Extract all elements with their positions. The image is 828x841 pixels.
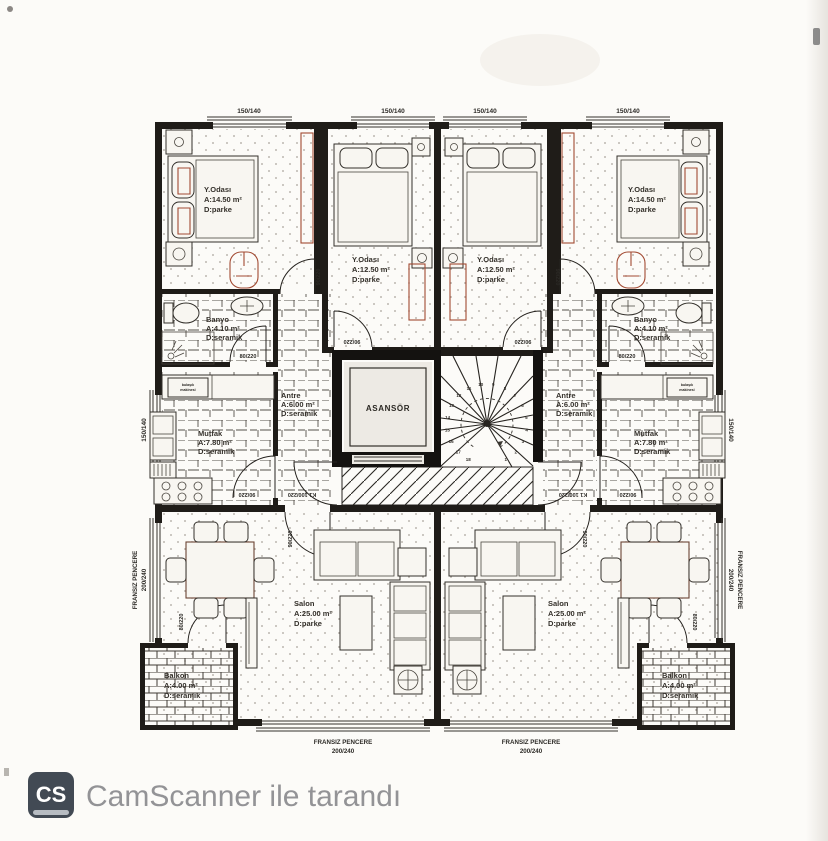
svg-text:Y.Odası: Y.Odası xyxy=(204,185,231,194)
elevator: ASANSÖR xyxy=(344,362,432,464)
svg-text:A:6.00 m²: A:6.00 m² xyxy=(281,400,315,409)
armchair-icon xyxy=(398,548,426,576)
svg-text:D:seramik: D:seramik xyxy=(164,691,201,700)
camscanner-caption: CamScanner ile tarandı xyxy=(86,780,401,813)
radiator-icon xyxy=(246,598,257,668)
nightstand-icon xyxy=(412,138,430,156)
stair-step-number: 10 xyxy=(478,382,484,387)
scan-smudge xyxy=(480,34,600,86)
radiator-icon xyxy=(618,598,629,668)
svg-text:D:parke: D:parke xyxy=(352,275,380,284)
stair-step-number: 17 xyxy=(456,449,462,454)
door-size-label: 80/220 xyxy=(179,614,185,631)
svg-text:D:parke: D:parke xyxy=(204,205,232,214)
stair-step-number: 12 xyxy=(456,393,462,398)
pillow-icon xyxy=(503,148,535,168)
pillow-icon xyxy=(681,162,703,198)
pillow-icon xyxy=(376,148,408,168)
stair-landing xyxy=(342,467,533,505)
svg-text:A:14.50 m²: A:14.50 m² xyxy=(204,195,242,204)
svg-text:D:seramik: D:seramik xyxy=(634,333,671,342)
door-size-label: 90/220 xyxy=(288,531,294,548)
svg-text:D:seramik: D:seramik xyxy=(281,409,318,418)
window-size-label: 150/140 xyxy=(237,108,261,115)
kitchen-sink-icon xyxy=(150,412,176,460)
camscanner-logo-text: CS xyxy=(36,782,67,807)
door-size-label: 80/220 xyxy=(619,354,636,360)
svg-text:D:seramik: D:seramik xyxy=(634,447,671,456)
svg-text:D:parke: D:parke xyxy=(294,619,322,628)
svg-text:Banyo: Banyo xyxy=(206,315,229,324)
french-window-label: FRANSIZ PENCERE xyxy=(736,551,743,609)
nightstand-icon xyxy=(166,242,192,266)
svg-text:A:7.80 m²: A:7.80 m² xyxy=(634,438,668,447)
svg-text:Salon: Salon xyxy=(294,599,315,608)
kitchen-sink-icon xyxy=(699,412,725,460)
svg-text:A:4.10 m²: A:4.10 m² xyxy=(634,324,668,333)
window-size-label: 150/140 xyxy=(381,108,405,115)
door-size-label: 90/220 xyxy=(581,531,587,548)
svg-text:Y.Odası: Y.Odası xyxy=(352,255,379,264)
door-size-label: 90/220 xyxy=(554,269,560,286)
window-size-label: 150/140 xyxy=(616,108,640,115)
door-size-label: 90/220 xyxy=(344,338,361,344)
svg-text:A:25.00 m²: A:25.00 m² xyxy=(548,609,586,618)
svg-text:Balkon: Balkon xyxy=(662,671,687,680)
door-size-label: 90/220 xyxy=(316,269,322,286)
svg-text:D:parke: D:parke xyxy=(628,205,656,214)
elevator-label: ASANSÖR xyxy=(366,404,410,413)
armchair-icon xyxy=(449,548,477,576)
door-size-label: 90/220 xyxy=(620,491,637,497)
svg-text:A:7.80 m²: A:7.80 m² xyxy=(198,438,232,447)
svg-text:A:4.00 m²: A:4.00 m² xyxy=(662,681,696,690)
svg-text:A:14.50 m²: A:14.50 m² xyxy=(628,195,666,204)
svg-text:D:parke: D:parke xyxy=(548,619,576,628)
door-size-label: 90/220 xyxy=(515,338,532,344)
french-window-label: 200/240 xyxy=(520,748,543,755)
window-size-label: 150/140 xyxy=(727,418,734,442)
sofa-icon xyxy=(445,582,485,670)
scan-edge-shadow xyxy=(806,0,828,841)
svg-text:Mutfak: Mutfak xyxy=(198,429,223,438)
svg-text:A:12.50 m²: A:12.50 m² xyxy=(352,265,390,274)
svg-text:Y.Odası: Y.Odası xyxy=(477,255,504,264)
toilet-icon xyxy=(702,303,711,323)
svg-text:D:seramik: D:seramik xyxy=(206,333,243,342)
svg-text:Balkon: Balkon xyxy=(164,671,189,680)
door-size-label: 90/220 xyxy=(239,491,256,497)
svg-text:D:seramik: D:seramik xyxy=(662,691,699,700)
svg-text:D:seramik: D:seramik xyxy=(198,447,235,456)
door-size-label: 80/220 xyxy=(691,614,697,631)
stair-newel xyxy=(484,421,490,427)
svg-text:A:6.00 m²: A:6.00 m² xyxy=(556,400,590,409)
scan-speck xyxy=(813,28,820,45)
stair-step-number: 11 xyxy=(467,386,472,391)
stair-step-number: 18 xyxy=(466,457,472,462)
loveseat-icon xyxy=(314,530,400,580)
french-window-label: FRANSIZ PENCERE xyxy=(132,551,139,609)
loveseat-icon xyxy=(475,530,561,580)
nightstand-icon xyxy=(683,130,709,154)
pillow-icon xyxy=(467,148,499,168)
svg-text:D:parke: D:parke xyxy=(477,275,505,284)
french-window-label: 200/240 xyxy=(141,568,148,591)
coffee-table-icon xyxy=(340,596,372,650)
entry-door-label: K1 100/220 xyxy=(288,491,316,497)
pillow-icon xyxy=(172,202,194,238)
appliance-label: bulaşık xyxy=(182,383,194,387)
french-window-label: 200/240 xyxy=(332,748,355,755)
scan-speck xyxy=(7,6,13,12)
svg-text:D:seramik: D:seramik xyxy=(556,409,593,418)
nightstand-icon xyxy=(445,138,463,156)
nightstand-icon xyxy=(412,248,432,268)
svg-text:A:4.10 m²: A:4.10 m² xyxy=(206,324,240,333)
svg-text:A:4.00 m²: A:4.00 m² xyxy=(164,681,198,690)
stair-step-number: 14 xyxy=(445,415,451,420)
svg-text:Antre: Antre xyxy=(281,391,301,400)
sofa-icon xyxy=(390,582,430,670)
pillow-icon xyxy=(172,162,194,198)
appliance-label: makinesi xyxy=(180,388,195,392)
french-window-label: FRANSIZ PENCERE xyxy=(314,739,372,746)
pillow-icon xyxy=(340,148,372,168)
svg-text:Y.Odası: Y.Odası xyxy=(628,185,655,194)
svg-text:Antre: Antre xyxy=(556,391,576,400)
scan-speck xyxy=(4,768,9,776)
toilet-icon xyxy=(164,303,173,323)
coffee-table-icon xyxy=(503,596,535,650)
svg-text:Banyo: Banyo xyxy=(634,315,657,324)
window-size-label: 150/140 xyxy=(141,418,148,442)
entry-door-label: K1 100/220 xyxy=(559,491,587,497)
nightstand-icon xyxy=(683,242,709,266)
svg-text:A:12.50 m²: A:12.50 m² xyxy=(477,265,515,274)
svg-text:Mutfak: Mutfak xyxy=(634,429,659,438)
floor-plan-drawing: ASANSÖR 123456789101112131415161718 xyxy=(0,0,828,841)
stair-step-number: 15 xyxy=(445,427,451,432)
door-size-label: 80/220 xyxy=(240,354,257,360)
svg-text:A:25.00 m²: A:25.00 m² xyxy=(294,609,332,618)
nightstand-icon xyxy=(166,130,192,154)
nightstand-icon xyxy=(443,248,463,268)
window-size-label: 150/140 xyxy=(473,108,497,115)
pillow-icon xyxy=(681,202,703,238)
scanned-floor-plan-page: ASANSÖR 123456789101112131415161718 xyxy=(0,0,828,841)
appliance-label: makinesi xyxy=(679,388,694,392)
stair-step-number: 13 xyxy=(449,403,455,408)
stair-step-number: 16 xyxy=(449,439,455,444)
french-window-label: FRANSIZ PENCERE xyxy=(502,739,560,746)
svg-text:Salon: Salon xyxy=(548,599,569,608)
appliance-label: bulaşık xyxy=(681,383,693,387)
french-window-label: 200/240 xyxy=(727,569,734,592)
